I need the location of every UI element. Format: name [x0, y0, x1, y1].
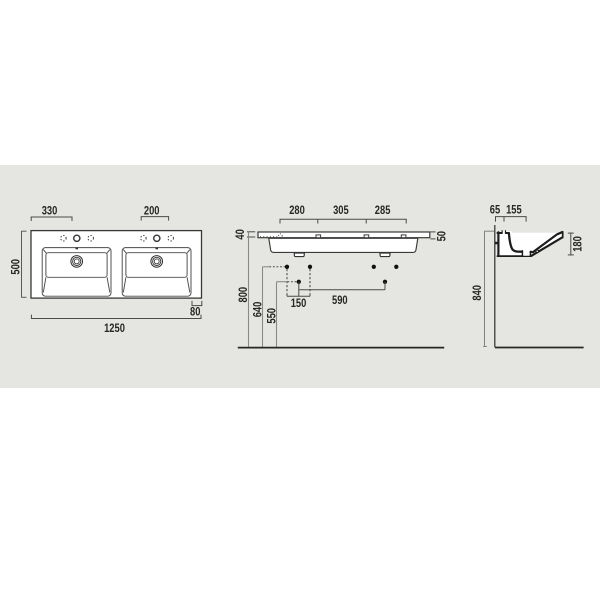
svg-text:800: 800 [237, 287, 250, 303]
svg-text:590: 590 [332, 294, 348, 307]
svg-text:840: 840 [471, 285, 484, 301]
svg-text:1250: 1250 [104, 322, 125, 335]
svg-text:200: 200 [144, 204, 160, 217]
svg-text:305: 305 [333, 204, 349, 217]
svg-text:550: 550 [265, 308, 278, 324]
svg-text:180: 180 [571, 236, 584, 252]
svg-text:65: 65 [490, 204, 500, 217]
svg-text:50: 50 [435, 231, 448, 241]
svg-text:155: 155 [506, 204, 522, 217]
svg-text:40: 40 [234, 229, 247, 239]
svg-text:80: 80 [190, 305, 200, 318]
svg-text:500: 500 [10, 259, 23, 275]
svg-text:150: 150 [291, 297, 307, 310]
svg-text:285: 285 [375, 204, 391, 217]
svg-text:280: 280 [289, 204, 305, 217]
svg-text:640: 640 [252, 302, 265, 318]
svg-text:330: 330 [42, 204, 58, 217]
